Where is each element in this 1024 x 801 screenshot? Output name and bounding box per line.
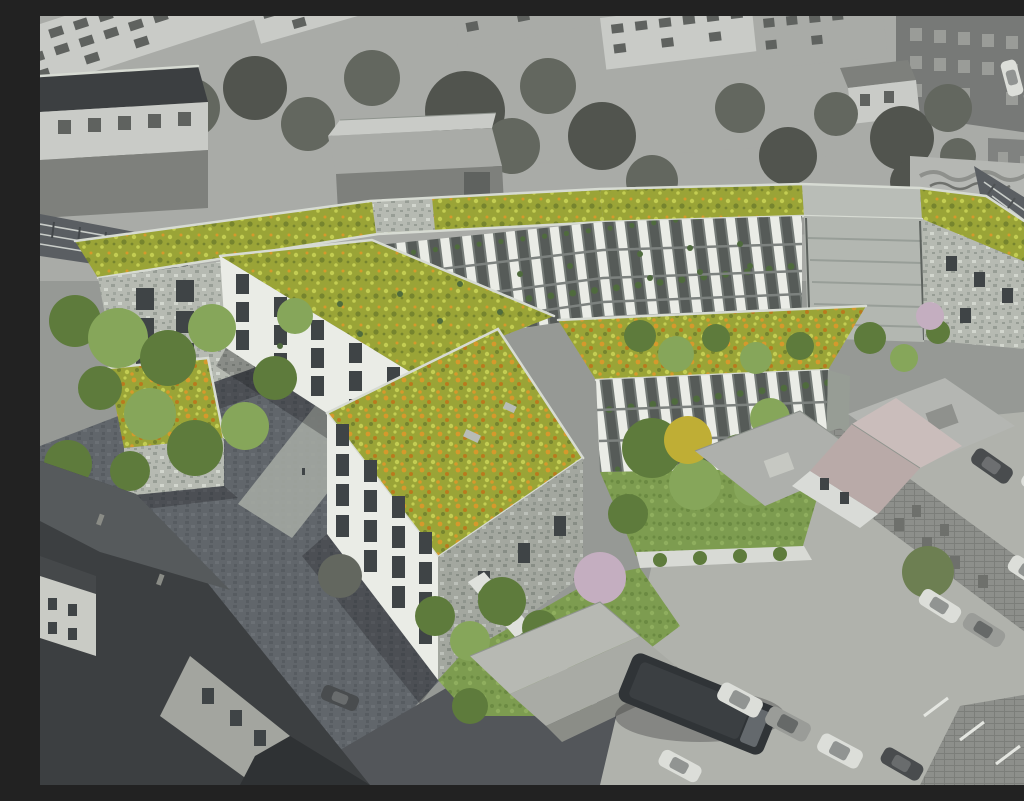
- aerial-rendering: Aerial architectural rendering: new resi…: [40, 16, 1024, 785]
- context-white-building: [40, 66, 208, 218]
- street-tree: [318, 554, 362, 598]
